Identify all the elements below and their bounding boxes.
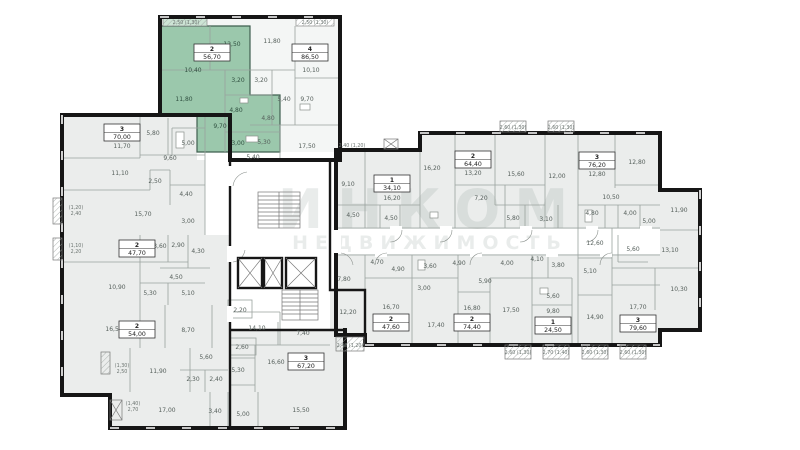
unit-area: 24,50 — [544, 327, 562, 334]
room-area-label: 10,50 — [602, 194, 619, 201]
balcony-crossed-box — [384, 139, 398, 149]
room-area-label: 3,40 — [208, 408, 222, 415]
unit-area: 34,10 — [383, 185, 401, 192]
room-area-label: 3,20 — [254, 77, 268, 84]
room-area-label: 11,90 — [149, 368, 166, 375]
room-area-label: 4,50 — [384, 215, 398, 222]
room-area-label: 4,80 — [229, 107, 243, 114]
room-area-label: 4,80 — [585, 210, 599, 217]
unit-label[interactable]: 2 56,70 — [194, 44, 230, 61]
floor-plan-page: ИНКОМ НЕДВИЖИМОСТЬ — [0, 0, 800, 450]
room-area-label: 8,70 — [181, 327, 195, 334]
room-area-label: 13,20 — [464, 170, 481, 177]
room-area-label: 16,70 — [382, 304, 399, 311]
room-area-label: 15,70 — [134, 211, 151, 218]
room-area-label: 5,00 — [181, 140, 195, 147]
room-area-label: 3,00 — [231, 140, 245, 147]
room-area-label: 4,90 — [391, 266, 405, 273]
unit-area: 86,50 — [301, 54, 319, 61]
balcony-label: (1,20) — [69, 205, 84, 211]
room-area-label: 4,50 — [169, 274, 183, 281]
room-area-label: 12,20 — [339, 309, 356, 316]
room-area-label: 2,90 — [171, 242, 185, 249]
room-area-label: 10,10 — [302, 67, 319, 74]
balcony-label: 2,50 (1,30) — [302, 20, 329, 26]
unit-number: 3 — [595, 154, 599, 161]
balcony-hatch — [101, 352, 110, 374]
room-area-label: 16,20 — [423, 165, 440, 172]
room-area-label: 3,10 — [539, 216, 553, 223]
unit-area: 56,70 — [203, 54, 221, 61]
unit-number: 3 — [636, 317, 640, 324]
balcony-hatch — [53, 238, 62, 260]
room-area-label: 4,10 — [530, 256, 544, 263]
room-area-label: 14,10 — [248, 325, 265, 332]
balcony-hatch — [53, 198, 62, 224]
unit-area: 47,60 — [382, 324, 400, 331]
room-area-label: 17,50 — [298, 143, 315, 150]
room-area-label: 9,80 — [546, 308, 560, 315]
unit-area: 76,20 — [588, 162, 606, 169]
room-area-label: 9,60 — [163, 155, 177, 162]
balcony-label: 2,50 (1,30) — [173, 20, 200, 26]
unit-number: 2 — [470, 316, 474, 323]
unit-label[interactable]: 2 74,40 — [454, 314, 490, 331]
unit-number: 1 — [551, 319, 555, 326]
room-area-label: 10,30 — [670, 286, 687, 293]
room-area-label: 11,80 — [263, 38, 280, 45]
unit-label[interactable]: 3 70,00 — [104, 124, 140, 141]
unit-number: 2 — [389, 316, 393, 323]
room-area-label: 4,80 — [261, 115, 275, 122]
balcony-label: 2,70 — [128, 407, 139, 413]
balcony-label: 2,20 — [71, 249, 82, 255]
room-area-label: 11,80 — [175, 96, 192, 103]
room-area-label: 5,10 — [181, 290, 195, 297]
unit-label[interactable]: 1 24,50 — [535, 317, 571, 334]
room-area-label: 5,10 — [583, 268, 597, 275]
room-area-label: 17,00 — [158, 407, 175, 414]
unit-number: 3 — [304, 355, 308, 362]
room-area-label: 5,60 — [546, 293, 560, 300]
room-area-label: 9,10 — [341, 181, 355, 188]
unit-area: 67,20 — [297, 363, 315, 370]
room-area-label: 17,70 — [629, 304, 646, 311]
balcony-label: 2,60 (1,30) — [500, 125, 527, 131]
unit-label[interactable]: 2 54,00 — [119, 321, 155, 338]
room-area-label: 12,60 — [586, 240, 603, 247]
unit-number: 2 — [210, 46, 214, 53]
unit-label[interactable]: 4 86,50 — [292, 44, 328, 61]
room-area-label: 15,60 — [507, 171, 524, 178]
room-area-label: 11,10 — [111, 170, 128, 177]
balcony-label: 2,50 — [117, 369, 128, 375]
balcony-label: 2,60 (1,30) — [582, 350, 609, 356]
balcony-label: 2,60 (1,30) — [505, 350, 532, 356]
balcony-label: 2,40 (1,20) — [337, 343, 364, 349]
room-area-label: 16,60 — [267, 359, 284, 366]
balcony-label: 2,40 — [71, 211, 82, 217]
room-area-label: 2,20 — [233, 307, 247, 314]
unit-number: 4 — [308, 46, 312, 53]
room-area-label: 4,40 — [179, 191, 193, 198]
room-area-label: 3,80 — [551, 262, 565, 269]
room-area-label: 14,90 — [586, 314, 603, 321]
room-area-label: 2,60 — [235, 344, 249, 351]
room-area-label: 11,70 — [113, 143, 130, 150]
room-area-label: 4,50 — [346, 212, 360, 219]
room-area-label: 4,00 — [623, 210, 637, 217]
room-area-label: 11,90 — [670, 207, 687, 214]
room-area-label: 2,30 — [186, 376, 200, 383]
room-area-label: 13,10 — [661, 247, 678, 254]
room-area-label: 10,40 — [184, 67, 201, 74]
unit-number: 2 — [135, 242, 139, 249]
room-area-label: 7,80 — [337, 276, 351, 283]
room-area-label: 5,80 — [146, 130, 160, 137]
unit-label[interactable]: 3 76,20 — [579, 152, 615, 169]
room-area-label: 12,80 — [628, 159, 645, 166]
unit-label[interactable]: 2 47,60 — [373, 314, 409, 331]
unit-label[interactable]: 2 47,70 — [119, 240, 155, 257]
room-area-label: 16,80 — [463, 305, 480, 312]
room-area-label: 9,70 — [213, 123, 227, 130]
balcony-label: 2,60 (1,30) — [620, 350, 647, 356]
unit-number: 3 — [120, 126, 124, 133]
room-area-label: 16,20 — [383, 195, 400, 202]
room-area-label: 5,40 — [246, 154, 260, 161]
room-area-label: 5,30 — [231, 367, 245, 374]
unit-label[interactable]: 3 79,60 — [620, 315, 656, 332]
room-area-label: 5,00 — [642, 218, 656, 225]
balcony-label: 2,60 (1,30) — [548, 125, 575, 131]
room-area-label: 4,00 — [500, 260, 514, 267]
room-area-label: 12,00 — [548, 173, 565, 180]
room-area-label: 2,50 — [148, 178, 162, 185]
room-area-label: 5,60 — [199, 354, 213, 361]
unit-number: 2 — [135, 323, 139, 330]
room-area-label: 5,80 — [506, 215, 520, 222]
room-area-label: 3,20 — [231, 77, 245, 84]
unit-number: 2 — [471, 153, 475, 160]
room-area-label: 5,90 — [478, 278, 492, 285]
room-area-label: 9,70 — [300, 96, 314, 103]
unit-area: 79,60 — [629, 325, 647, 332]
unit-label[interactable]: 2 64,40 — [455, 151, 491, 168]
room-area-label: 4,70 — [370, 259, 384, 266]
room-area-label: 7,40 — [296, 330, 310, 337]
room-area-label: 17,40 — [427, 322, 444, 329]
room-area-label: 5,30 — [143, 290, 157, 297]
balcony-label: 2,70 (1,40) — [543, 350, 570, 356]
floor-plan-svg: ИНКОМ НЕДВИЖИМОСТЬ — [0, 0, 800, 450]
room-area-label: 10,90 — [108, 284, 125, 291]
room-area-label: 7,20 — [474, 195, 488, 202]
unit-area: 64,40 — [464, 161, 482, 168]
unit-label[interactable]: 3 67,20 — [288, 353, 324, 370]
room-area-label: 12,80 — [588, 171, 605, 178]
room-area-label: 5,00 — [236, 411, 250, 418]
room-area-label: 15,50 — [292, 407, 309, 414]
room-area-label: 3,00 — [181, 218, 195, 225]
unit-area: 47,70 — [128, 250, 146, 257]
unit-area: 70,00 — [113, 134, 131, 141]
room-area-label: 5,30 — [257, 139, 271, 146]
room-area-label: 3,60 — [423, 263, 437, 270]
unit-area: 74,40 — [463, 324, 481, 331]
unit-label[interactable]: 1 34,10 — [374, 175, 410, 192]
unit-number: 1 — [390, 177, 394, 184]
room-area-label: 3,00 — [417, 285, 431, 292]
room-area-label: 5,40 — [277, 96, 291, 103]
room-area-label: 17,50 — [502, 307, 519, 314]
balcony-label: (1,10) — [69, 243, 84, 249]
unit-area: 54,00 — [128, 331, 146, 338]
room-area-label: 5,60 — [626, 246, 640, 253]
balcony-label: 2,40 (1,20) — [339, 143, 366, 149]
room-area-label: 4,30 — [191, 248, 205, 255]
room-area-label: 4,90 — [452, 260, 466, 267]
balcony-label: (1,30) — [115, 363, 130, 369]
balcony-label: (1,40) — [126, 401, 141, 407]
room-area-label: 2,40 — [209, 376, 223, 383]
